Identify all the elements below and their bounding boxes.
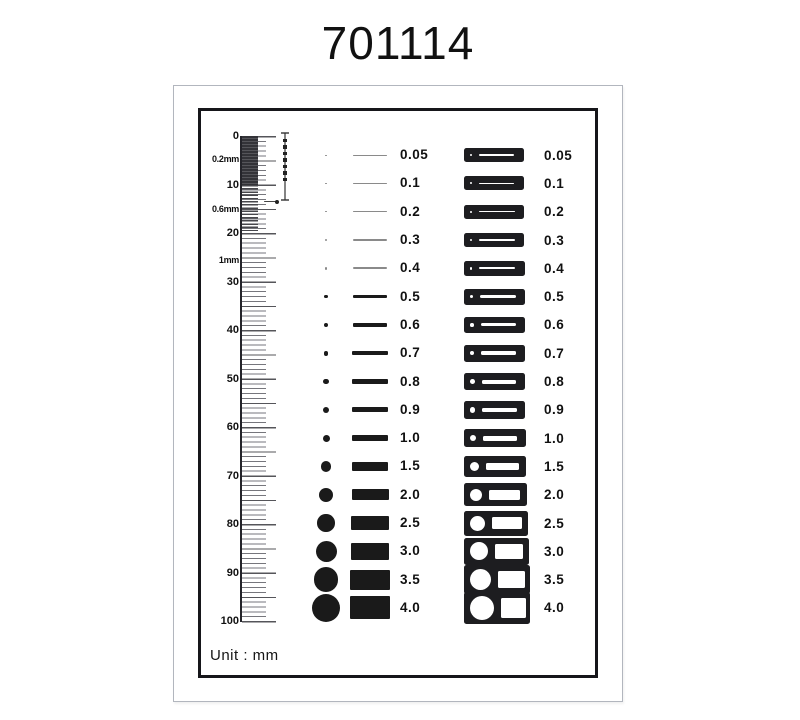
line-marker bbox=[352, 351, 387, 355]
size-row: 0.10.1 bbox=[306, 169, 596, 197]
ruler-pitch-label: 0.6mm bbox=[199, 203, 239, 215]
chip-bar bbox=[481, 351, 516, 355]
ruler-tick-label: 70 bbox=[199, 470, 239, 482]
size-value-label: 2.5 bbox=[400, 515, 420, 530]
size-row: 0.50.5 bbox=[306, 282, 596, 310]
size-reference-rows: 0.050.050.10.10.20.20.30.30.40.40.50.50.… bbox=[306, 141, 596, 622]
size-row: 3.53.5 bbox=[306, 565, 596, 593]
dot-marker bbox=[324, 323, 328, 327]
chip-dot bbox=[470, 351, 474, 355]
negative-chip bbox=[464, 345, 525, 362]
ruler-tick-label: 0 bbox=[199, 130, 239, 142]
dimension-annotation-icon bbox=[277, 130, 291, 210]
chip-bar bbox=[482, 380, 517, 384]
negative-chip bbox=[464, 176, 524, 190]
size-row: 0.70.7 bbox=[306, 339, 596, 367]
chip-size-value-label: 0.8 bbox=[544, 374, 564, 389]
ruler-tick-label: 100 bbox=[199, 615, 239, 627]
chip-dot bbox=[470, 516, 485, 531]
calibration-slide-page: 701114 00.2mm100.6mm201mm304050607080901… bbox=[0, 0, 800, 720]
chip-bar bbox=[479, 267, 515, 269]
chip-dot bbox=[470, 154, 472, 156]
size-value-label: 0.9 bbox=[400, 402, 420, 417]
line-marker bbox=[351, 516, 389, 530]
line-marker bbox=[353, 239, 387, 241]
negative-chip bbox=[464, 148, 524, 162]
chip-bar bbox=[492, 517, 522, 530]
negative-chip bbox=[464, 261, 525, 276]
size-row: 0.90.9 bbox=[306, 396, 596, 424]
size-row: 0.30.3 bbox=[306, 226, 596, 254]
line-marker bbox=[352, 462, 388, 471]
pitch-pointer-icon bbox=[264, 200, 279, 204]
chip-dot bbox=[470, 569, 491, 590]
ruler-spine bbox=[240, 136, 242, 622]
vertical-scale-ruler: 00.2mm100.6mm201mm30405060708090100 bbox=[201, 111, 301, 675]
ruler-medium-pitch-block bbox=[242, 185, 258, 234]
dot-marker bbox=[323, 379, 329, 385]
chip-size-value-label: 0.9 bbox=[544, 402, 564, 417]
line-marker bbox=[351, 543, 390, 560]
size-row: 0.80.8 bbox=[306, 367, 596, 395]
ruler-tick-label: 80 bbox=[199, 518, 239, 530]
line-marker bbox=[353, 267, 388, 269]
chip-size-value-label: 0.2 bbox=[544, 204, 564, 219]
chip-size-value-label: 1.0 bbox=[544, 431, 564, 446]
size-row: 1.51.5 bbox=[306, 452, 596, 480]
chip-size-value-label: 2.5 bbox=[544, 516, 564, 531]
ruler-tick-label: 40 bbox=[199, 324, 239, 336]
size-value-label: 4.0 bbox=[400, 600, 420, 615]
chip-dot bbox=[470, 211, 472, 213]
dot-marker bbox=[325, 155, 326, 156]
ruler-tick-label: 60 bbox=[199, 421, 239, 433]
dot-marker bbox=[314, 567, 339, 592]
chip-bar bbox=[479, 211, 515, 212]
negative-chip bbox=[464, 538, 529, 565]
dot-marker bbox=[325, 183, 326, 184]
line-marker bbox=[353, 155, 387, 156]
size-row: 4.04.0 bbox=[306, 594, 596, 622]
ruler-tick-label: 90 bbox=[199, 567, 239, 579]
negative-chip bbox=[464, 592, 530, 624]
chip-dot bbox=[470, 379, 475, 384]
size-value-label: 1.5 bbox=[400, 458, 420, 473]
negative-chip bbox=[464, 456, 526, 476]
size-value-label: 0.6 bbox=[400, 317, 420, 332]
line-marker bbox=[353, 211, 387, 212]
chip-dot bbox=[470, 182, 472, 184]
chip-dot bbox=[470, 596, 494, 620]
chip-bar bbox=[479, 183, 514, 184]
size-value-label: 0.8 bbox=[400, 374, 420, 389]
chip-bar bbox=[489, 490, 520, 500]
chip-size-value-label: 3.5 bbox=[544, 572, 564, 587]
product-number-title: 701114 bbox=[173, 16, 623, 70]
chip-dot bbox=[470, 267, 472, 269]
size-row: 0.20.2 bbox=[306, 198, 596, 226]
size-value-label: 3.0 bbox=[400, 543, 420, 558]
size-row: 3.03.0 bbox=[306, 537, 596, 565]
dot-marker bbox=[316, 541, 337, 562]
dot-marker bbox=[324, 295, 328, 299]
size-value-label: 0.3 bbox=[400, 232, 420, 247]
chip-size-value-label: 0.05 bbox=[544, 148, 572, 163]
size-row: 0.40.4 bbox=[306, 254, 596, 282]
chip-size-value-label: 0.1 bbox=[544, 176, 564, 191]
line-marker bbox=[352, 407, 387, 412]
line-marker bbox=[352, 435, 388, 441]
chip-size-value-label: 0.5 bbox=[544, 289, 564, 304]
chip-size-value-label: 3.0 bbox=[544, 544, 564, 559]
chip-bar bbox=[482, 408, 516, 413]
chip-dot bbox=[470, 323, 474, 327]
chip-size-value-label: 0.4 bbox=[544, 261, 564, 276]
dot-marker bbox=[323, 435, 330, 442]
dot-marker bbox=[325, 239, 327, 241]
line-marker bbox=[353, 323, 388, 326]
chip-bar bbox=[501, 598, 526, 618]
negative-chip bbox=[464, 317, 525, 333]
slide-outer-frame: 00.2mm100.6mm201mm30405060708090100 bbox=[173, 85, 623, 702]
ruler-pitch-label: 0.2mm bbox=[199, 153, 239, 165]
negative-chip bbox=[464, 565, 530, 595]
chip-size-value-label: 0.6 bbox=[544, 317, 564, 332]
chip-dot bbox=[470, 489, 482, 501]
chip-dot bbox=[470, 542, 488, 560]
size-row: 0.60.6 bbox=[306, 311, 596, 339]
size-row: 2.52.5 bbox=[306, 509, 596, 537]
line-marker bbox=[352, 379, 387, 384]
ruler-pitch-label: 1mm bbox=[199, 254, 239, 266]
negative-chip bbox=[464, 289, 525, 305]
line-marker bbox=[350, 570, 389, 590]
chip-size-value-label: 2.0 bbox=[544, 487, 564, 502]
ruler-tick-label: 10 bbox=[199, 179, 239, 191]
chip-dot bbox=[470, 295, 473, 298]
size-row: 1.01.0 bbox=[306, 424, 596, 452]
line-marker bbox=[352, 489, 389, 501]
unit-label: Unit : mm bbox=[210, 647, 279, 664]
size-value-label: 0.5 bbox=[400, 289, 420, 304]
chip-bar bbox=[495, 544, 523, 559]
chip-bar bbox=[498, 571, 525, 589]
chip-bar bbox=[483, 436, 517, 441]
size-value-label: 0.4 bbox=[400, 260, 420, 275]
dot-marker bbox=[325, 211, 326, 212]
chip-bar bbox=[486, 463, 519, 471]
dot-marker bbox=[317, 514, 335, 532]
chip-size-value-label: 1.5 bbox=[544, 459, 564, 474]
chip-bar bbox=[481, 323, 516, 326]
chip-size-value-label: 0.3 bbox=[544, 233, 564, 248]
size-value-label: 1.0 bbox=[400, 430, 420, 445]
ruler-tick-label: 50 bbox=[199, 373, 239, 385]
chip-dot bbox=[470, 435, 476, 441]
size-value-label: 0.1 bbox=[400, 175, 420, 190]
chip-dot bbox=[470, 462, 479, 471]
size-row: 2.02.0 bbox=[306, 481, 596, 509]
chip-bar bbox=[480, 295, 516, 298]
negative-chip bbox=[464, 429, 526, 447]
chip-size-value-label: 0.7 bbox=[544, 346, 564, 361]
line-marker bbox=[353, 183, 387, 184]
chip-bar bbox=[479, 239, 515, 241]
negative-chip bbox=[464, 511, 528, 536]
negative-chip bbox=[464, 373, 525, 390]
dot-marker bbox=[324, 351, 329, 356]
chip-dot bbox=[470, 239, 472, 241]
dot-marker bbox=[319, 488, 333, 502]
size-value-label: 0.7 bbox=[400, 345, 420, 360]
size-value-label: 2.0 bbox=[400, 487, 420, 502]
line-marker bbox=[353, 295, 388, 298]
negative-chip bbox=[464, 233, 524, 248]
ruler-tick-label: 30 bbox=[199, 276, 239, 288]
chip-size-value-label: 4.0 bbox=[544, 600, 564, 615]
negative-chip bbox=[464, 205, 524, 219]
size-value-label: 3.5 bbox=[400, 572, 420, 587]
chip-dot bbox=[470, 407, 475, 412]
negative-chip bbox=[464, 401, 525, 419]
size-row: 0.050.05 bbox=[306, 141, 596, 169]
chip-bar bbox=[479, 154, 514, 155]
dot-marker bbox=[323, 407, 329, 413]
dot-marker bbox=[321, 461, 332, 472]
dot-marker bbox=[325, 267, 328, 270]
slide-inner-frame: 00.2mm100.6mm201mm30405060708090100 bbox=[198, 108, 598, 678]
ruler-tick-label: 20 bbox=[199, 227, 239, 239]
line-marker bbox=[350, 596, 390, 619]
size-value-label: 0.2 bbox=[400, 204, 420, 219]
negative-chip bbox=[464, 483, 527, 506]
size-value-label: 0.05 bbox=[400, 147, 428, 162]
ruler-fine-pitch-block bbox=[242, 136, 258, 185]
dot-marker bbox=[312, 594, 340, 622]
